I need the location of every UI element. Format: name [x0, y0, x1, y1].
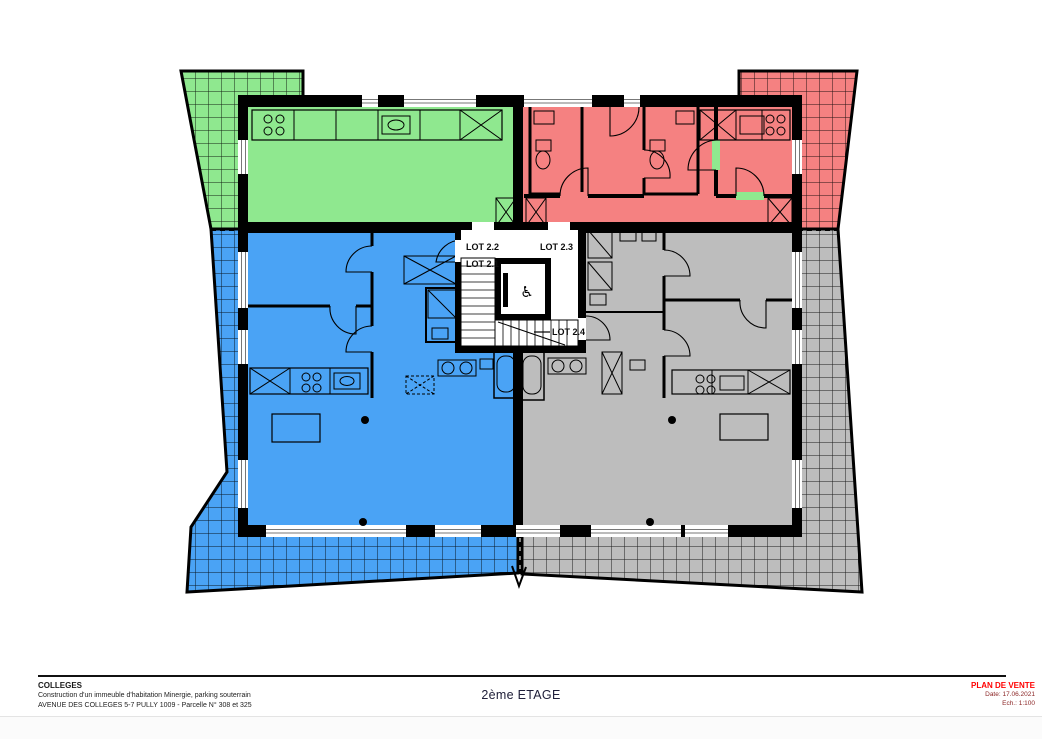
lot-label-2-1: LOT 2.1	[466, 259, 499, 269]
elevator: ♿	[495, 258, 551, 320]
lot-label-2-4: LOT 2.4	[552, 327, 585, 337]
stamp-date: Date: 17.06.2021	[971, 691, 1035, 700]
lot-label-2-2: LOT 2.2	[466, 242, 499, 252]
stamp-title: PLAN DE VENTE	[971, 681, 1035, 691]
sale-plan-stamp: PLAN DE VENTE Date: 17.06.2021 Ech.: 1:1…	[971, 681, 1035, 708]
page-bottom-edge	[0, 716, 1042, 739]
apartment-lot-2-2	[238, 95, 520, 234]
title-block-rule	[38, 675, 1006, 677]
stair-core: ♿ LOT 2.2 LOT 2.1 LOT 2.3 LOT 2.4	[455, 230, 586, 353]
plan-sheet: ♿ LOT 2.2 LOT 2.1 LOT 2.3 LOT 2.4 COLLEG…	[0, 0, 1042, 739]
floor-plan-svg: ♿ LOT 2.2 LOT 2.1 LOT 2.3 LOT 2.4	[0, 0, 1042, 739]
stair-flight-upper	[461, 258, 495, 346]
lot-label-2-3: LOT 2.3	[540, 242, 573, 252]
wheelchair-accessible-icon: ♿	[520, 283, 533, 301]
stamp-scale: Ech.: 1:100	[971, 700, 1035, 709]
floor-title: 2ème ETAGE	[0, 688, 1042, 702]
